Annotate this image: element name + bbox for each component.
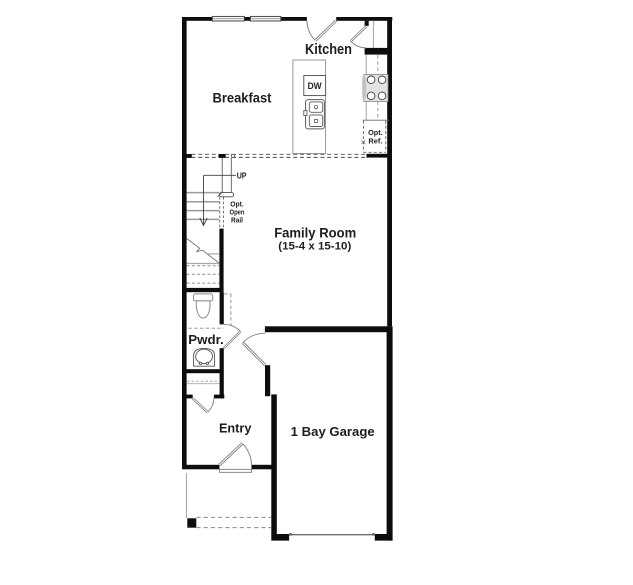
svg-text:Open: Open bbox=[230, 210, 245, 217]
svg-text:DW: DW bbox=[308, 81, 322, 91]
svg-text:Opt.: Opt. bbox=[368, 130, 383, 137]
svg-text:Opt.: Opt. bbox=[230, 202, 244, 209]
svg-text:Rail: Rail bbox=[231, 217, 243, 224]
svg-text:UP: UP bbox=[237, 170, 247, 180]
svg-text:(15-4 x 15-10): (15-4 x 15-10) bbox=[278, 241, 351, 253]
svg-text:Pwdr.: Pwdr. bbox=[188, 332, 224, 347]
svg-text:1 Bay Garage: 1 Bay Garage bbox=[291, 424, 375, 439]
svg-text:Breakfast: Breakfast bbox=[213, 91, 272, 106]
svg-text:Kitchen: Kitchen bbox=[305, 41, 352, 58]
svg-text:Ref.: Ref. bbox=[368, 139, 382, 146]
svg-text:Family Room: Family Room bbox=[274, 224, 356, 240]
svg-text:Entry: Entry bbox=[219, 420, 252, 435]
